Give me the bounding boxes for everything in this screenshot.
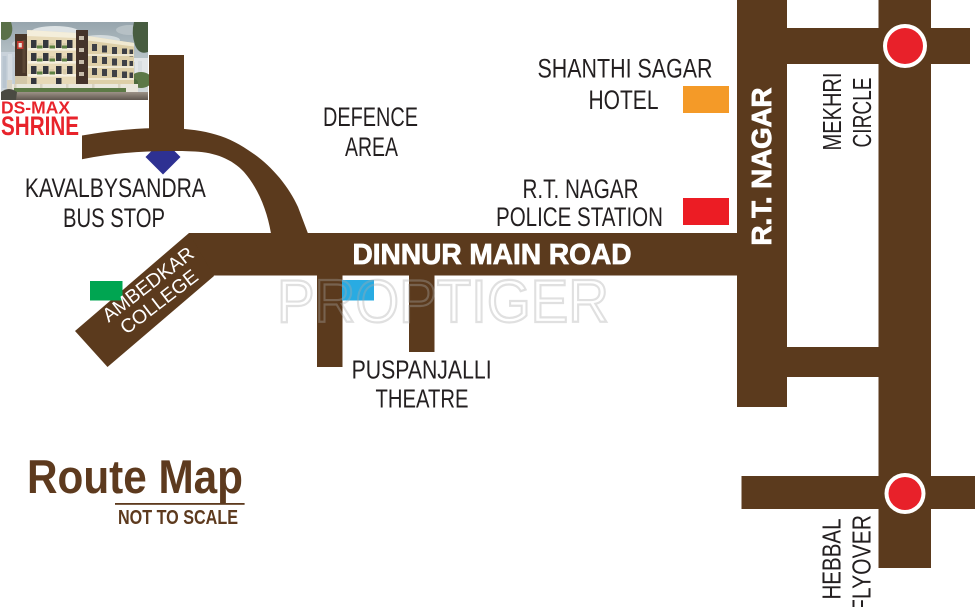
svg-text:DINNUR MAIN ROAD: DINNUR MAIN ROAD — [353, 239, 632, 271]
svg-text:THEATRE: THEATRE — [376, 386, 469, 414]
svg-text:CIRCLE: CIRCLE — [849, 78, 877, 148]
svg-text:HEBBAL: HEBBAL — [819, 519, 847, 600]
svg-text:FLYOVER: FLYOVER — [849, 515, 877, 607]
svg-text:PROPTIGER: PROPTIGER — [277, 268, 609, 335]
svg-text:POLICE STATION: POLICE STATION — [496, 202, 663, 232]
svg-text:R.T. NAGAR: R.T. NAGAR — [746, 88, 777, 246]
svg-text:Route Map: Route Map — [27, 450, 243, 503]
svg-text:HOTEL: HOTEL — [589, 85, 659, 115]
svg-text:SHRINE: SHRINE — [1, 112, 79, 142]
svg-text:KAVALBYSANDRA: KAVALBYSANDRA — [25, 173, 206, 203]
svg-text:MEKHRI: MEKHRI — [819, 73, 847, 151]
svg-text:SHANTHI SAGAR: SHANTHI SAGAR — [538, 54, 713, 84]
svg-text:R.T. NAGAR: R.T. NAGAR — [523, 174, 639, 204]
svg-text:NOT TO SCALE: NOT TO SCALE — [118, 506, 238, 529]
svg-text:AREA: AREA — [345, 132, 398, 162]
svg-text:DEFENCE: DEFENCE — [323, 102, 418, 132]
svg-text:PUSPANJALLI: PUSPANJALLI — [352, 356, 492, 384]
svg-text:BUS STOP: BUS STOP — [63, 203, 165, 233]
